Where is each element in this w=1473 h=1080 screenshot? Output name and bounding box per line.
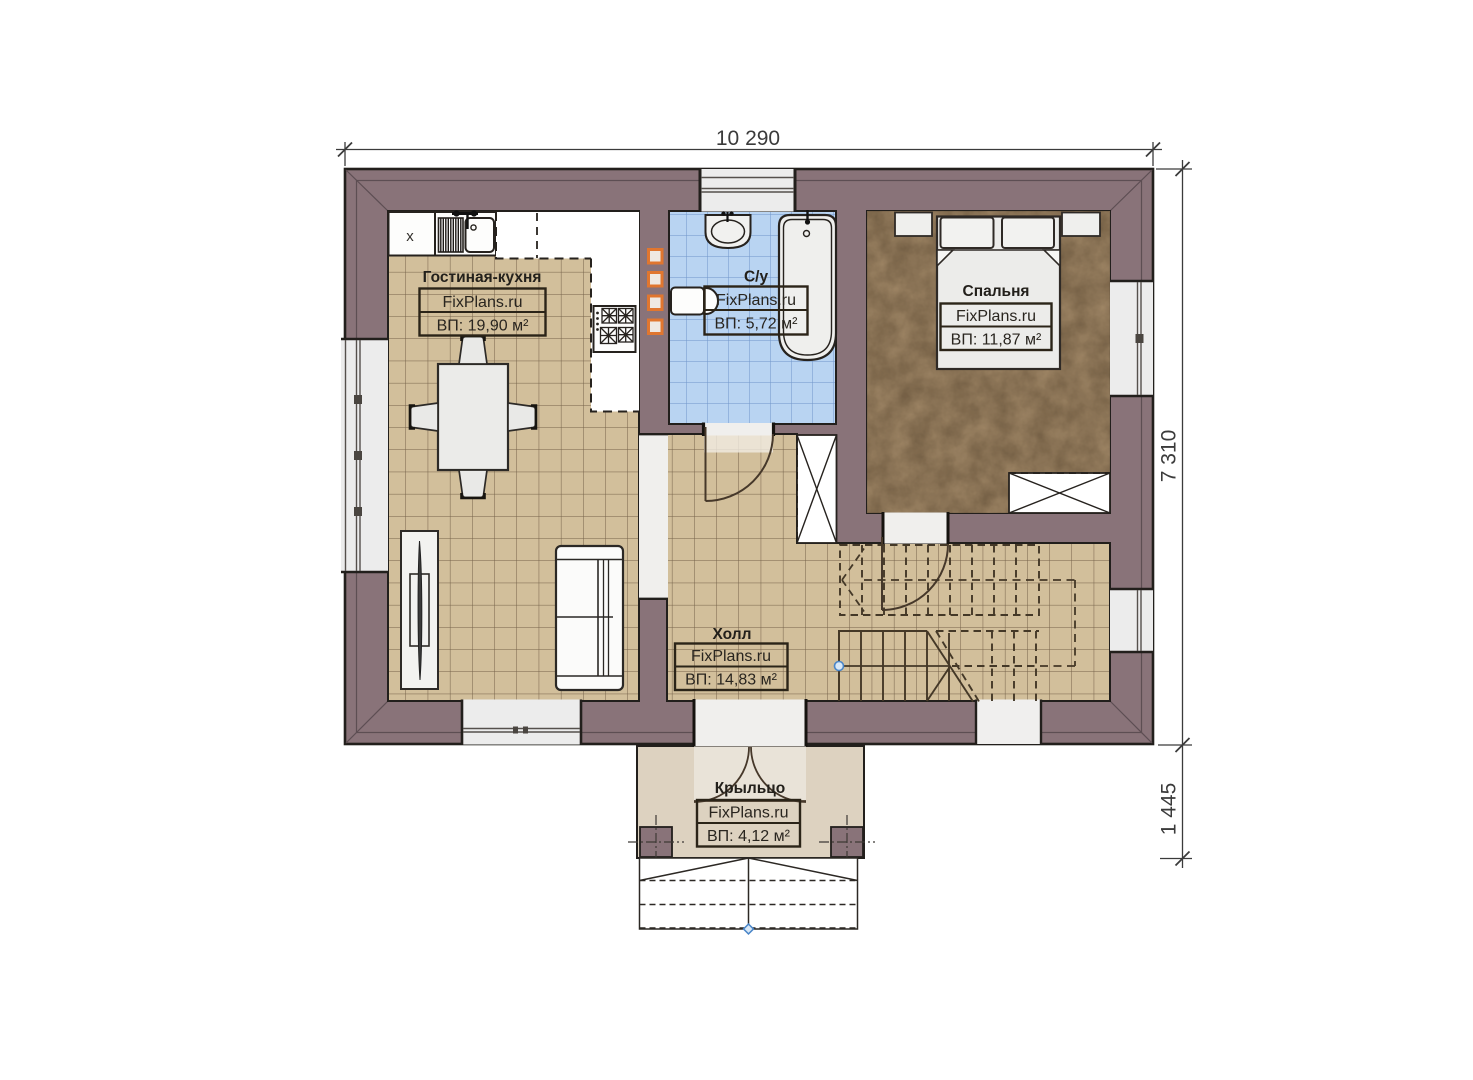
svg-text:FixPlans.ru: FixPlans.ru (716, 292, 796, 309)
svg-text:FixPlans.ru: FixPlans.ru (708, 805, 788, 822)
svg-text:FixPlans.ru: FixPlans.ru (442, 294, 522, 311)
svg-text:x: x (406, 228, 414, 245)
svg-text:Спальня: Спальня (963, 283, 1030, 300)
svg-text:ВП: 14,83 м²: ВП: 14,83 м² (685, 672, 778, 689)
svg-text:ВП: 11,87 м²: ВП: 11,87 м² (951, 332, 1042, 349)
svg-text:1 445: 1 445 (1158, 783, 1181, 836)
svg-text:С/у: С/у (744, 269, 769, 286)
svg-text:ВП: 4,12 м²: ВП: 4,12 м² (707, 828, 791, 845)
svg-text:FixPlans.ru: FixPlans.ru (691, 648, 771, 665)
svg-text:ВП: 19,90 м²: ВП: 19,90 м² (437, 318, 530, 335)
svg-text:Гостиная-кухня: Гостиная-кухня (423, 269, 542, 286)
svg-text:FixPlans.ru: FixPlans.ru (956, 308, 1036, 325)
svg-text:10 290: 10 290 (716, 127, 780, 150)
svg-text:Холл: Холл (713, 626, 752, 643)
svg-text:ВП: 5,72 м²: ВП: 5,72 м² (715, 316, 799, 333)
svg-text:7 310: 7 310 (1158, 430, 1181, 483)
svg-text:Крыльцо: Крыльцо (715, 780, 786, 797)
